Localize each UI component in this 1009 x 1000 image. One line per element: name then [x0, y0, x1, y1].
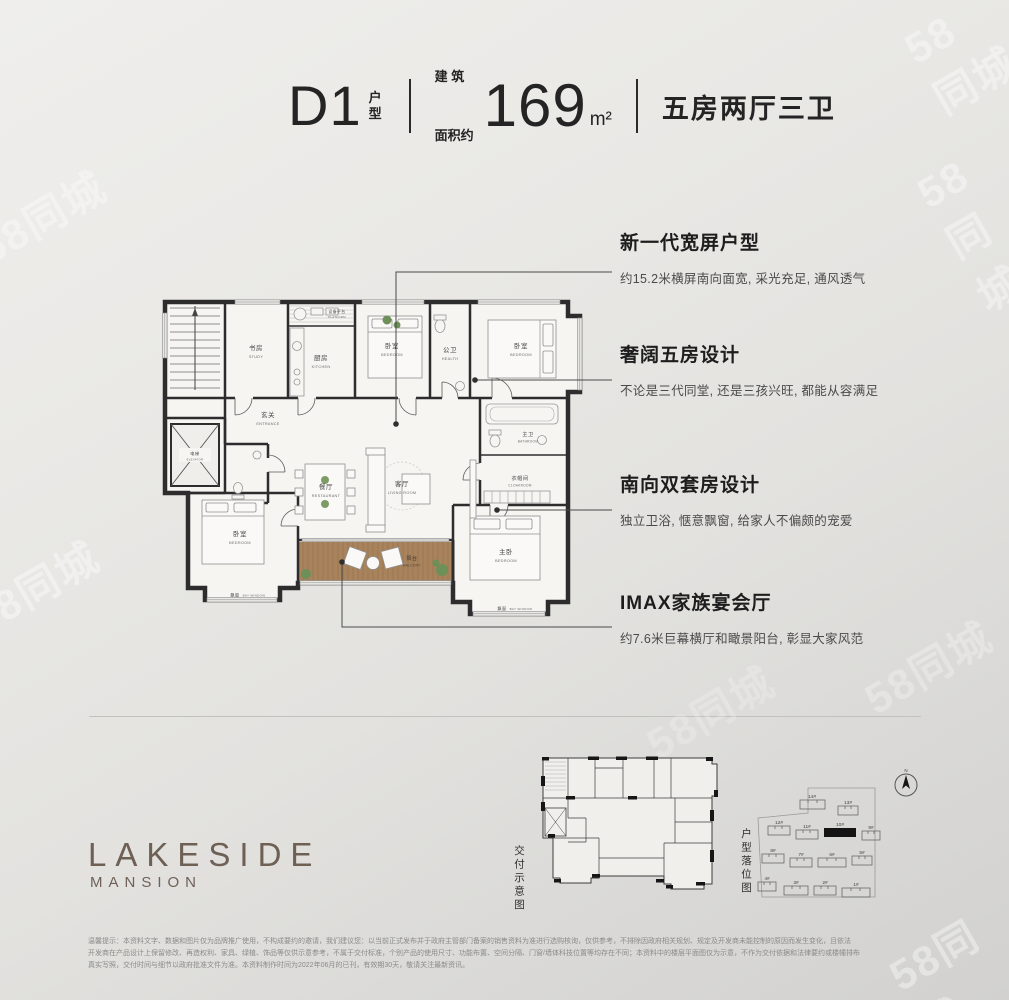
svg-text:ELEVATOR: ELEVATOR: [187, 458, 204, 462]
floorplan-poster: D1 户型 建 筑 面积约 169 m² 五房两厅三卫 新一代宽屏户型 约15.…: [0, 0, 1009, 1000]
site-building-highlighted: [824, 828, 856, 837]
svg-text:13#: 13#: [844, 800, 852, 806]
brand-name-line2: MANSION: [90, 874, 202, 891]
svg-text:CLOAKROOM: CLOAKROOM: [508, 484, 531, 488]
svg-text:3#: 3#: [793, 880, 799, 886]
svg-text:BEDROOM: BEDROOM: [229, 541, 251, 545]
site-buildings: [758, 800, 880, 897]
brand-name-line1: LAKESIDE: [88, 836, 321, 874]
room-label-bay-sw: 飘窗: [231, 592, 240, 598]
svg-text:8#: 8#: [770, 848, 776, 854]
room-label-bedroom-n2: 卧室: [514, 341, 528, 350]
svg-text:N: N: [904, 768, 907, 773]
svg-text:PLATFORM: PLATFORM: [328, 315, 346, 319]
delivery-plan-label: 交付示意图: [512, 845, 527, 913]
annotation-imax-hall: IMAX家族宴会厅 约7.6米巨幕横厅和瞰景阳台, 彰显大家风范: [620, 588, 998, 647]
annotation-title: 南向双套房设计: [620, 470, 998, 497]
unit-code: D1: [288, 78, 362, 134]
svg-text:6#: 6#: [829, 852, 835, 858]
svg-text:BEDROOM: BEDROOM: [495, 559, 517, 563]
svg-text:STUDY: STUDY: [249, 355, 264, 359]
svg-text:LIVING ROOM: LIVING ROOM: [388, 491, 417, 495]
room-label-bedroom-sw: 卧室: [233, 529, 247, 538]
room-label-kitchen: 厨房: [314, 353, 328, 362]
footer-divider: [89, 716, 921, 717]
room-label-elevator: 电梯: [190, 450, 199, 457]
annotation-desc: 约7.6米巨幕横厅和瞰景阳台, 彰显大家风范: [620, 628, 998, 647]
area-unit: m²: [590, 109, 612, 131]
svg-text:HEALTH: HEALTH: [442, 357, 459, 361]
svg-text:BEDROOM: BEDROOM: [381, 353, 403, 357]
svg-text:4#: 4#: [764, 876, 770, 882]
svg-text:BALCONY: BALCONY: [403, 564, 421, 568]
annotation-desc: 不论是三代同堂, 还是三孩兴旺, 都能从容满足: [620, 380, 998, 399]
svg-text:1#: 1#: [853, 882, 859, 888]
disclaimer: 温馨提示：本资料文字、数据和图片仅为品牌推广使用，不构成要约的邀请，我们建议您：…: [88, 936, 922, 972]
annotation-title: 奢阔五房设计: [620, 340, 998, 367]
main-floorplan: 设备平台 PLATFORM 书房 STUDY 厨房 KITCHEN 卧室 BED…: [140, 258, 615, 648]
svg-text:10#: 10#: [836, 822, 844, 828]
room-label-bedroom-n1: 卧室: [385, 341, 399, 350]
svg-text:RESTAURANT: RESTAURANT: [312, 494, 341, 498]
area-value: 169: [484, 76, 587, 136]
svg-text:7#: 7#: [798, 852, 804, 858]
room-label-entrance: 玄关: [261, 410, 275, 419]
svg-text:KITCHEN: KITCHEN: [312, 365, 331, 369]
annotation-title: IMAX家族宴会厅: [620, 588, 998, 615]
watermark: 58同城: [897, 0, 1009, 126]
compass-icon: N: [895, 768, 917, 796]
room-label-dining: 餐厅: [319, 482, 333, 491]
svg-text:ENTRANCE: ENTRANCE: [256, 422, 279, 426]
room-label-bath-public: 公卫: [443, 346, 457, 354]
svg-text:BATHROOM: BATHROOM: [518, 440, 539, 444]
site-building-labels: 14# 13# 12# 11# 10# 9# 8# 7# 6# 5# 4# 3#…: [764, 794, 874, 888]
svg-text:2#: 2#: [822, 880, 828, 886]
room-label-study: 书房: [249, 343, 263, 352]
watermark: 58同城: [0, 154, 117, 276]
annotation-widescreen: 新一代宽屏户型 约15.2米横屏南向面宽, 采光充足, 通风透气: [620, 228, 998, 287]
room-label-bay-master: 飘窗: [498, 605, 507, 611]
watermark: 58同城: [0, 524, 110, 646]
svg-text:12#: 12#: [775, 820, 783, 826]
annotation-five-rooms: 奢阔五房设计 不论是三代同堂, 还是三孩兴旺, 都能从容满足: [620, 340, 998, 399]
delivery-mini-plan: [528, 752, 728, 902]
svg-text:11#: 11#: [803, 824, 811, 830]
header-divider-2: [636, 79, 638, 133]
svg-text:5#: 5#: [859, 850, 865, 856]
room-label-living: 客厅: [395, 479, 409, 488]
room-label-equip: 设备平台: [328, 309, 345, 314]
area-label: 建 筑 面积约: [435, 28, 474, 184]
siteplan: 14# 13# 12# 11# 10# 9# 8# 7# 6# 5# 4# 3#…: [738, 765, 958, 905]
room-label-bedroom-master: 主卧: [499, 547, 513, 556]
svg-text:9#: 9#: [868, 825, 874, 831]
header: D1 户型 建 筑 面积约 169 m² 五房两厅三卫: [288, 74, 836, 138]
layout-description: 五房两厅三卫: [662, 87, 836, 126]
room-label-balcony: 阳台: [406, 555, 417, 562]
header-divider-1: [409, 79, 411, 133]
room-label-bath-master: 主卫: [522, 430, 533, 438]
annotation-double-suite: 南向双套房设计 独立卫浴, 惬意飘窗, 给家人不偏颇的宠爱: [620, 470, 998, 529]
room-label-cloakroom: 衣帽间: [511, 474, 528, 482]
svg-text:BAY WINDOW: BAY WINDOW: [510, 607, 533, 611]
annotation-title: 新一代宽屏户型: [620, 228, 998, 255]
svg-text:BAY WINDOW: BAY WINDOW: [243, 594, 266, 598]
annotation-desc: 约15.2米横屏南向面宽, 采光充足, 通风透气: [620, 268, 998, 287]
unit-type-label: 户型: [369, 90, 385, 123]
annotation-desc: 独立卫浴, 惬意飘窗, 给家人不偏颇的宠爱: [620, 510, 998, 529]
svg-text:BEDROOM: BEDROOM: [510, 353, 532, 357]
svg-text:14#: 14#: [808, 794, 816, 800]
